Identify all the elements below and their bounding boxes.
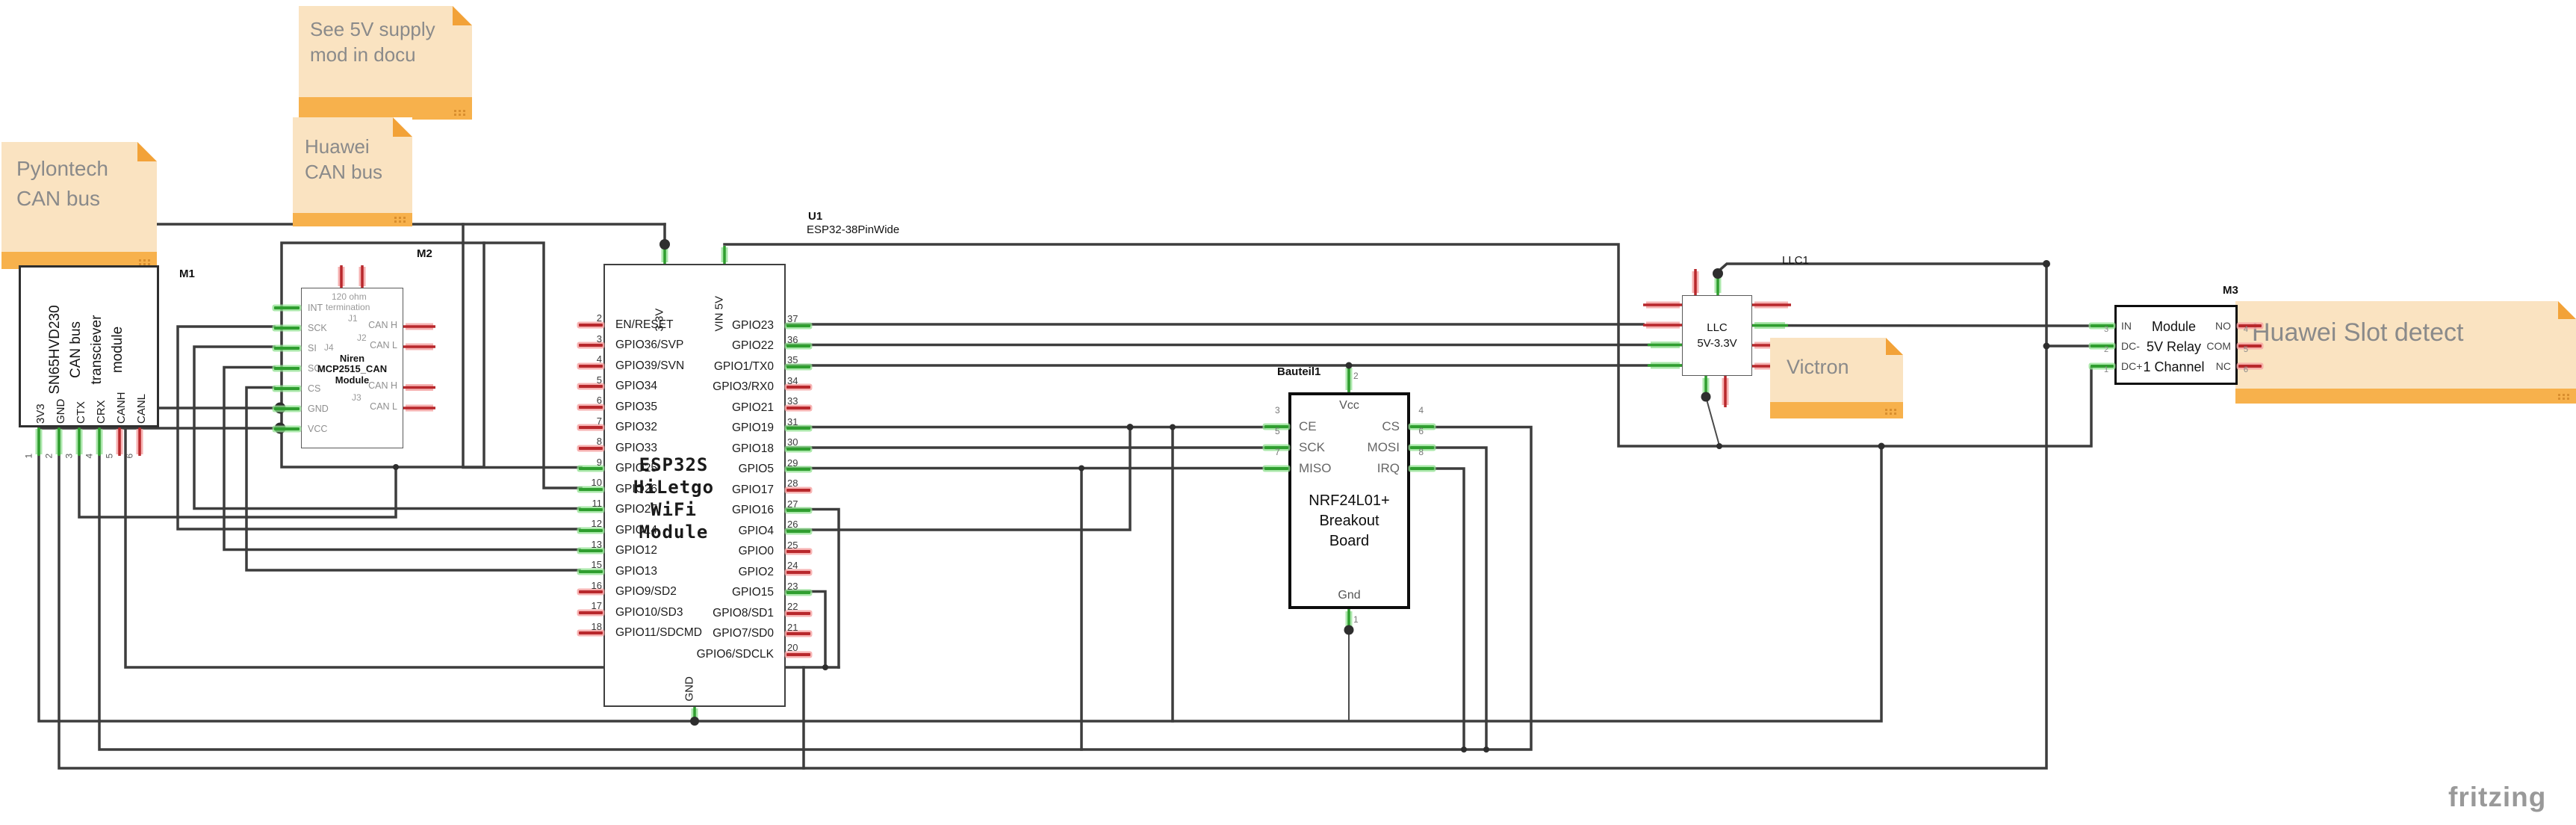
relay-part-text: Module5V Relay1 Channel — [2138, 317, 2210, 377]
esp32-part-text-line: HiLetgo — [605, 476, 742, 498]
pin-stub[interactable] — [786, 550, 810, 553]
pin-number: 37 — [787, 313, 807, 324]
esp32-part-text-line: WiFi — [605, 498, 742, 521]
nrf-bottom-pin-number: 1 — [1353, 614, 1359, 625]
m2-part-name: Module — [302, 374, 403, 386]
pin-number: 20 — [787, 642, 807, 653]
resize-grip-icon[interactable] — [403, 220, 406, 223]
pin-number: 8 — [582, 436, 602, 447]
pin-stub[interactable] — [2091, 344, 2114, 347]
nrf-part-text-line: Breakout — [1291, 511, 1407, 531]
pin-stub[interactable] — [786, 530, 810, 533]
note-line: Victron — [1787, 356, 1903, 378]
pin-number: 11 — [582, 498, 602, 509]
note-title-bar[interactable] — [293, 213, 412, 226]
pin-stub[interactable] — [274, 427, 300, 430]
relay-part-text-line: 1 Channel — [2138, 357, 2210, 377]
sticky-note-victron[interactable]: Victron — [1770, 338, 1903, 418]
llc-ref-label: LLC1 — [1782, 254, 1809, 267]
m2-termination-note: termination — [326, 302, 370, 312]
fritzing-logo: fritzing — [2448, 782, 2546, 813]
pin-row[interactable]: 25 GPIO0 — [605, 542, 784, 563]
esp32-top-pin-label[interactable]: 3.3V — [654, 265, 666, 332]
relay-part-text-line: Module — [2138, 317, 2210, 337]
pin-label: GPIO6/SDCLK — [697, 648, 784, 661]
pin-stub[interactable] — [579, 549, 603, 552]
pin-number: 16 — [582, 580, 602, 591]
pin-number: 3 — [2104, 325, 2108, 334]
m1-pin-label[interactable]: CANL — [135, 368, 147, 424]
sticky-note-huawei-can[interactable]: HuaweiCAN bus — [293, 117, 412, 226]
pin-row[interactable]: VCC — [302, 418, 403, 439]
relay-part-text-line: 5V Relay — [2138, 337, 2210, 357]
esp32-top-pin-label[interactable]: VIN 5V — [713, 265, 726, 332]
note-title-bar[interactable] — [2235, 389, 2576, 404]
pin-label: GPIO21 — [732, 401, 784, 415]
note-line: CAN bus — [305, 159, 412, 185]
pin-row[interactable]: 8 IRQ — [1291, 458, 1407, 479]
pin-number: 28 — [787, 478, 807, 489]
pin-stub[interactable] — [579, 385, 603, 388]
note-title-bar[interactable] — [1770, 402, 1903, 418]
pin-number: 30 — [787, 436, 807, 448]
pin-stub[interactable] — [2238, 324, 2262, 327]
pin-number: 6 — [1418, 426, 1424, 436]
pin-stub[interactable] — [786, 386, 810, 389]
pin-stub[interactable] — [1264, 467, 1288, 470]
pin-stub[interactable] — [786, 571, 810, 574]
pin-row[interactable]: 24 GPIO2 — [605, 562, 784, 583]
m1-pin-number: 6 — [125, 436, 134, 459]
pin-stub[interactable] — [786, 612, 810, 615]
resize-grip-icon[interactable] — [2567, 398, 2569, 400]
pin-stub[interactable] — [579, 508, 603, 511]
pin-label: INT — [302, 303, 323, 313]
m2-jumper-label: J4 — [324, 342, 334, 353]
nrf-ref-label: Bauteil1 — [1277, 365, 1320, 378]
note-corner-fold-icon — [393, 117, 412, 137]
pin-stub[interactable] — [579, 447, 603, 450]
pin-number: 4 — [582, 353, 602, 365]
llc-part-text-line: LLC — [1683, 320, 1751, 336]
relay-module[interactable]: 3 IN 2 DC- 1 DC+ 4 NO 5 — [2114, 305, 2238, 385]
pin-label: GPIO2 — [739, 566, 784, 579]
note-line: Huawei Slot detect — [2252, 318, 2576, 347]
pin-number: 13 — [582, 539, 602, 550]
pin-stub[interactable] — [579, 631, 603, 634]
pin-stub[interactable] — [786, 489, 810, 492]
m1-pin-label[interactable]: GND — [55, 368, 66, 424]
m2-right-pin-label[interactable]: CAN L — [370, 401, 397, 412]
m1-pin-label[interactable]: CANH — [115, 368, 127, 424]
esp32-part-text-line: ESP32S — [605, 454, 742, 476]
note-text: See 5V supplymod in docu — [299, 6, 472, 97]
note-line: Pylontech — [16, 154, 157, 184]
pin-stub[interactable] — [2091, 365, 2114, 368]
pin-row[interactable]: 36 GPIO22 — [605, 336, 784, 357]
pin-number: 5 — [2244, 345, 2248, 354]
pin-stub[interactable] — [786, 324, 810, 327]
m2-part-name: Niren — [302, 353, 403, 364]
note-line: See 5V supply — [310, 16, 472, 42]
pin-number: 22 — [787, 601, 807, 612]
pin-stub[interactable] — [786, 468, 810, 471]
m1-pin-label[interactable]: CRX — [95, 368, 107, 424]
pin-number: 3 — [582, 333, 602, 344]
pin-stub[interactable] — [274, 306, 300, 309]
note-line: mod in docu — [310, 42, 472, 67]
pin-number: 3 — [1275, 405, 1280, 415]
pin-number: 2 — [582, 312, 602, 324]
m2-part-name: MCP2515_CAN — [302, 363, 403, 374]
pin-label: GPIO8/SD1 — [713, 607, 784, 620]
pin-number: 29 — [787, 457, 807, 469]
pin-row[interactable]: 4 CS — [1291, 416, 1407, 437]
m2-jumper-label: J3 — [352, 392, 361, 403]
pin-number: 1 — [2104, 365, 2108, 374]
pin-number: 10 — [582, 477, 602, 488]
esp32-part-name: ESP32-38PinWide — [807, 223, 899, 236]
pin-stub[interactable] — [579, 406, 603, 409]
m2-jumper-label: J1 — [348, 313, 358, 324]
pin-label: MOSI — [1368, 440, 1407, 455]
pin-row[interactable]: 23 GPIO15 — [605, 583, 784, 604]
pin-stub[interactable] — [274, 347, 300, 350]
pin-number: 26 — [787, 519, 807, 530]
esp32-part-text: ESP32SHiLetgoWiFiModule — [605, 454, 742, 543]
pin-stub[interactable] — [579, 570, 603, 573]
pin-label: GPIO5 — [739, 463, 784, 476]
pin-label: GPIO4 — [739, 525, 784, 538]
pin-row[interactable]: 22 GPIO8/SD1 — [605, 603, 784, 624]
pin-stub[interactable] — [786, 591, 810, 594]
pin-number: 8 — [1418, 447, 1424, 457]
pin-row[interactable]: 35 GPIO1/TX0 — [605, 356, 784, 377]
pin-number: 33 — [787, 395, 807, 407]
pin-number: 9 — [582, 457, 602, 468]
pin-label: IRQ — [1377, 461, 1407, 476]
pin-number: 2 — [2104, 345, 2108, 354]
pin-label: GPIO22 — [732, 339, 784, 353]
pin-label: COM — [2206, 340, 2235, 352]
pin-stub[interactable] — [786, 653, 810, 656]
pin-stub[interactable] — [786, 509, 810, 512]
note-corner-fold-icon — [2558, 301, 2576, 319]
pin-stub[interactable] — [579, 590, 603, 593]
m2-termination-note: 120 ohm — [332, 291, 367, 302]
nrf-right-pins: 4 CS 6 MOSI 8 IRQ — [1291, 416, 1407, 479]
pin-label: NC — [2216, 360, 2235, 372]
esp32-bottom-pin-label[interactable]: GND — [683, 642, 696, 702]
sticky-note-pylontech-can[interactable]: PylontechCAN bus — [1, 142, 157, 269]
pin-number: 27 — [787, 498, 807, 510]
m2-mcp2515-can-module[interactable]: INT SCK SI SO CS GND — [301, 288, 403, 448]
llc-part-text: LLC5V-3.3V — [1683, 320, 1751, 351]
m1-pin-number: 1 — [24, 436, 34, 459]
llc-part-text-line: 5V-3.3V — [1683, 336, 1751, 351]
pin-label: GPIO0 — [739, 545, 784, 558]
pin-number: 6 — [2244, 365, 2248, 374]
pin-number: 31 — [787, 416, 807, 427]
note-text: Huawei Slot detect — [2235, 301, 2576, 389]
note-corner-fold-icon — [1886, 338, 1903, 355]
note-line: Huawei — [305, 134, 412, 159]
note-text: Victron — [1770, 338, 1903, 402]
pin-stub[interactable] — [2238, 344, 2262, 347]
pin-number: 35 — [787, 354, 807, 365]
m1-pin-label[interactable]: CTX — [75, 368, 87, 424]
pin-label: GPIO15 — [732, 586, 784, 599]
m2-ref-label: M2 — [417, 247, 432, 260]
llc-level-converter[interactable]: LLC5V-3.3V — [1682, 295, 1752, 376]
m1-pin-number: 5 — [105, 436, 114, 459]
pin-stub[interactable] — [2238, 365, 2262, 368]
m2-right-pin-label[interactable]: CAN L — [370, 340, 397, 351]
pin-label: GPIO7/SD0 — [713, 627, 784, 640]
pin-number: 18 — [582, 621, 602, 632]
pin-stub[interactable] — [2091, 324, 2114, 327]
pin-label: CS — [1382, 419, 1407, 434]
pin-stub[interactable] — [274, 407, 300, 410]
pin-number: 21 — [787, 622, 807, 633]
pin-stub[interactable] — [274, 327, 300, 330]
junction-dots — [275, 239, 2051, 753]
pin-number: 7 — [582, 415, 602, 427]
pin-stub[interactable] — [579, 365, 603, 368]
m1-pin-number: 3 — [64, 436, 74, 459]
pin-number: 15 — [582, 559, 602, 570]
m1-pin-label[interactable]: 3V3 — [34, 368, 46, 424]
pin-row[interactable]: 34 GPIO3/RX0 — [605, 377, 784, 398]
nrf-bottom-pin-label[interactable]: Gnd — [1291, 589, 1407, 602]
pin-row[interactable]: 37 GPIO23 — [605, 315, 784, 336]
pin-number: 4 — [2244, 325, 2248, 334]
pin-stub[interactable] — [274, 367, 300, 370]
pin-stub[interactable] — [786, 344, 810, 347]
pin-number: 7 — [1275, 447, 1280, 457]
pin-stub[interactable] — [579, 426, 603, 429]
nrf-part-text-line: Board — [1291, 531, 1407, 551]
resize-grip-icon[interactable] — [1894, 412, 1896, 415]
pin-number: 36 — [787, 334, 807, 345]
pin-stub[interactable] — [274, 387, 300, 390]
schematic-canvas: See 5V supplymod in docu HuaweiCAN bus P… — [0, 0, 2576, 825]
nrf-part-text: NRF24L01+BreakoutBoard — [1291, 491, 1407, 551]
sticky-note-5v-supply[interactable]: See 5V supplymod in docu — [299, 6, 472, 120]
pin-label: SCK — [302, 323, 327, 333]
pin-label: GND — [302, 404, 329, 414]
m1-pin-number: 2 — [44, 436, 54, 459]
pin-stub[interactable] — [1410, 467, 1434, 470]
resize-grip-icon[interactable] — [463, 114, 465, 116]
pin-number: 5 — [1275, 426, 1280, 436]
pin-label: GPIO3/RX0 — [713, 380, 784, 394]
pin-stub[interactable] — [579, 467, 603, 470]
pin-label: GPIO23 — [732, 319, 784, 333]
nrf-top-pin-label[interactable]: Vcc — [1291, 399, 1407, 412]
nrf24l01-breakout[interactable]: Vcc Gnd 3 CE 5 SCK 7 MISO — [1288, 392, 1410, 609]
pin-row[interactable]: 31 GPIO19 — [605, 418, 784, 439]
pin-row[interactable]: 6 MOSI — [1291, 437, 1407, 458]
pin-number: 17 — [582, 600, 602, 611]
nrf-part-text-line: NRF24L01+ — [1291, 491, 1407, 511]
pin-stub[interactable] — [579, 324, 603, 327]
pin-number: 24 — [787, 560, 807, 571]
nrf-top-pin-number: 2 — [1353, 371, 1359, 381]
pin-number: 34 — [787, 375, 807, 386]
pin-number: 25 — [787, 540, 807, 551]
pin-stub[interactable] — [579, 344, 603, 347]
note-text: PylontechCAN bus — [1, 142, 157, 252]
pin-stub[interactable] — [786, 448, 810, 451]
esp32-part-text-line: Module — [605, 521, 742, 543]
m2-jumper-label: J2 — [357, 333, 367, 343]
pin-label: SI — [302, 343, 317, 353]
sticky-note-huawei-slot-detect[interactable]: Huawei Slot detect — [2235, 301, 2576, 404]
pin-stub[interactable] — [579, 529, 603, 532]
m1-pin-number: 4 — [84, 436, 94, 459]
pin-row[interactable]: 33 GPIO21 — [605, 398, 784, 418]
pin-label: GPIO1/TX0 — [714, 360, 784, 374]
pin-number: 23 — [787, 581, 807, 592]
pin-number: 12 — [582, 518, 602, 529]
pin-stub[interactable] — [786, 632, 810, 635]
pin-number: 6 — [582, 395, 602, 406]
pin-label: GPIO19 — [732, 421, 784, 435]
relay-ref-label: M3 — [2223, 284, 2238, 297]
pin-number: 4 — [1418, 405, 1424, 415]
pin-label: NO — [2215, 320, 2235, 332]
pin-stub[interactable] — [786, 365, 810, 368]
pin-stub[interactable] — [579, 611, 603, 614]
pin-stub[interactable] — [786, 427, 810, 430]
pin-stub[interactable] — [786, 407, 810, 410]
esp32-ref-label: U1 — [808, 210, 822, 223]
note-line: CAN bus — [16, 184, 157, 214]
m2-right-pin-label[interactable]: CAN H — [368, 320, 397, 331]
note-corner-fold-icon — [137, 142, 157, 161]
pin-label: VCC — [302, 424, 327, 434]
pin-number: 5 — [582, 374, 602, 386]
note-corner-fold-icon — [453, 6, 472, 25]
m1-ref-label: M1 — [179, 268, 195, 280]
esp32-module[interactable]: 2 EN/RESET 3 GPIO36/SVP 4 GPIO39/SVN 5 G… — [603, 264, 786, 707]
pin-stub[interactable] — [579, 488, 603, 491]
note-title-bar[interactable] — [299, 97, 472, 120]
